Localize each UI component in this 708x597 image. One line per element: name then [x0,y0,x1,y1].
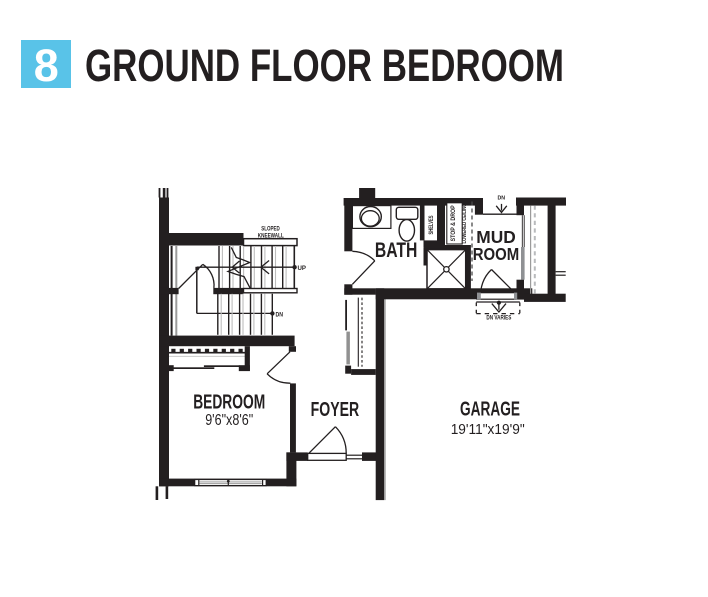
svg-text:DN: DN [498,196,506,202]
svg-text:SLOPED: SLOPED [261,225,280,232]
svg-text:9'6"x8'6": 9'6"x8'6" [205,412,253,429]
svg-text:FOYER: FOYER [311,399,360,421]
svg-text:GROUND FLOOR BEDROOM: GROUND FLOOR BEDROOM [85,40,564,91]
svg-text:8: 8 [34,40,59,91]
svg-text:STOP & DROP: STOP & DROP [451,205,457,241]
svg-text:KNEEWALL: KNEEWALL [258,232,284,239]
svg-text:SHELVES: SHELVES [429,216,435,235]
svg-text:BATH: BATH [375,238,418,262]
svg-text:LOWERED CEILING: LOWERED CEILING [462,204,468,244]
svg-text:BEDROOM: BEDROOM [193,392,265,414]
svg-text:ROOM: ROOM [473,244,520,264]
svg-text:UP: UP [298,265,307,272]
svg-text:DN VARIES: DN VARIES [486,315,511,322]
svg-text:19'11"x19'9": 19'11"x19'9" [451,421,525,438]
svg-text:GARAGE: GARAGE [460,399,520,421]
svg-text:DN: DN [276,311,284,318]
